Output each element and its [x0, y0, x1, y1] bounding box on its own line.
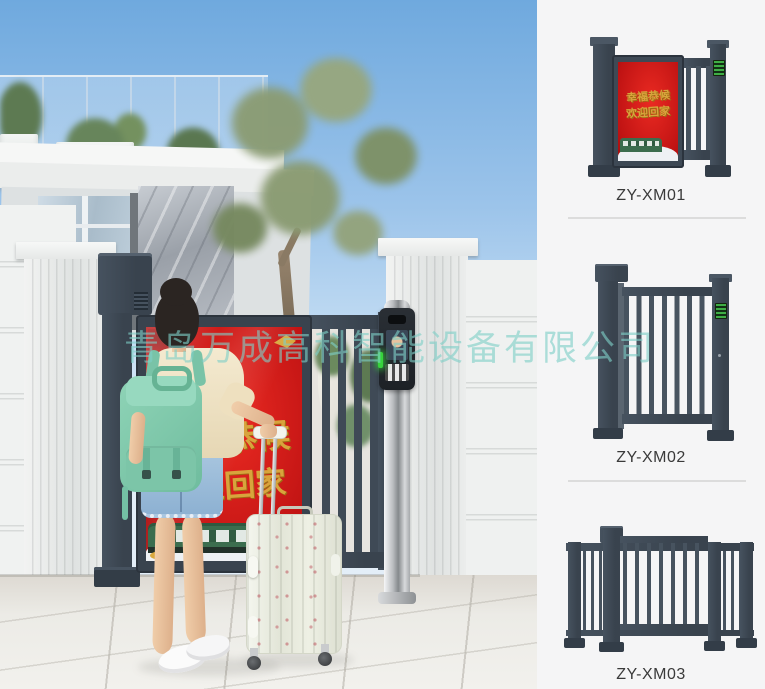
right-pillar-cap	[378, 238, 478, 256]
motor-vents	[134, 292, 148, 310]
face-recognition-screen	[386, 330, 408, 360]
buckle	[142, 470, 151, 479]
product-card-zy-xm01[interactable]: 幸福恭候 欢迎回家	[537, 30, 765, 185]
backpack-side-strap	[122, 486, 128, 520]
hand	[260, 424, 277, 438]
keypad-icon[interactable]	[385, 364, 409, 381]
gate-post	[598, 281, 618, 431]
wall-base-shadow	[0, 574, 420, 577]
suitcase-wheel	[247, 656, 261, 670]
suitcase-corner-guard	[331, 554, 340, 576]
fence-bars-left	[583, 551, 603, 631]
post-base	[599, 642, 624, 652]
hair-bun	[160, 278, 192, 306]
post-dot	[718, 354, 721, 357]
mini-train-windows	[623, 141, 659, 146]
fence-post	[603, 530, 620, 645]
mini-ad-screen: 幸福恭候 欢迎回家	[618, 62, 678, 161]
fence-post	[708, 542, 721, 643]
page: 幸福恭候 欢迎回家	[0, 0, 765, 689]
left-leg	[152, 514, 176, 654]
pole-base	[378, 592, 416, 604]
scene-photo: 幸福恭候 欢迎回家	[0, 0, 537, 689]
post-base	[704, 641, 725, 651]
post-base	[707, 430, 734, 441]
mini-bottom-rail	[684, 150, 712, 160]
camera-icon	[388, 315, 406, 324]
fence-bars-right	[723, 551, 740, 631]
divider	[568, 480, 746, 482]
buckle	[172, 470, 181, 479]
mini-gate-bars	[623, 543, 707, 626]
suitcase-body[interactable]	[246, 514, 342, 654]
post-base	[593, 428, 623, 439]
suitcase-wheel	[318, 652, 332, 666]
product-label-zy-xm03: ZY-XM03	[537, 666, 765, 684]
product-label-zy-xm01: ZY-XM01	[537, 187, 765, 205]
right-fence-wall	[466, 260, 537, 580]
product-label-zy-xm02: ZY-XM02	[537, 449, 765, 467]
backpack-handle	[152, 366, 192, 391]
product-card-zy-xm03[interactable]	[537, 520, 765, 655]
fence-bottom-rail	[566, 630, 754, 636]
mini-motor-box	[595, 264, 628, 282]
green-keypad-icon	[713, 60, 725, 76]
product-card-zy-xm02[interactable]	[537, 258, 765, 443]
suitcase-corner-guard	[248, 556, 258, 578]
green-indicator	[378, 352, 383, 368]
mini-ad-line2: 欢迎回家	[618, 102, 678, 122]
post-base	[736, 638, 757, 648]
left-pillar	[24, 259, 108, 581]
mini-top-rail	[622, 287, 712, 296]
gate-post-base	[94, 567, 140, 587]
fence-post	[740, 542, 753, 640]
mini-bottom-rail	[622, 414, 712, 424]
mini-bars	[624, 296, 712, 414]
green-keypad-icon	[715, 303, 727, 319]
post-base	[705, 165, 731, 177]
fence-post	[568, 542, 581, 640]
mini-bars	[686, 66, 712, 155]
post-base	[564, 638, 585, 648]
divider	[568, 217, 746, 219]
suitcase-corner-guard	[248, 616, 258, 638]
mini-gate-top-rail	[620, 536, 708, 543]
